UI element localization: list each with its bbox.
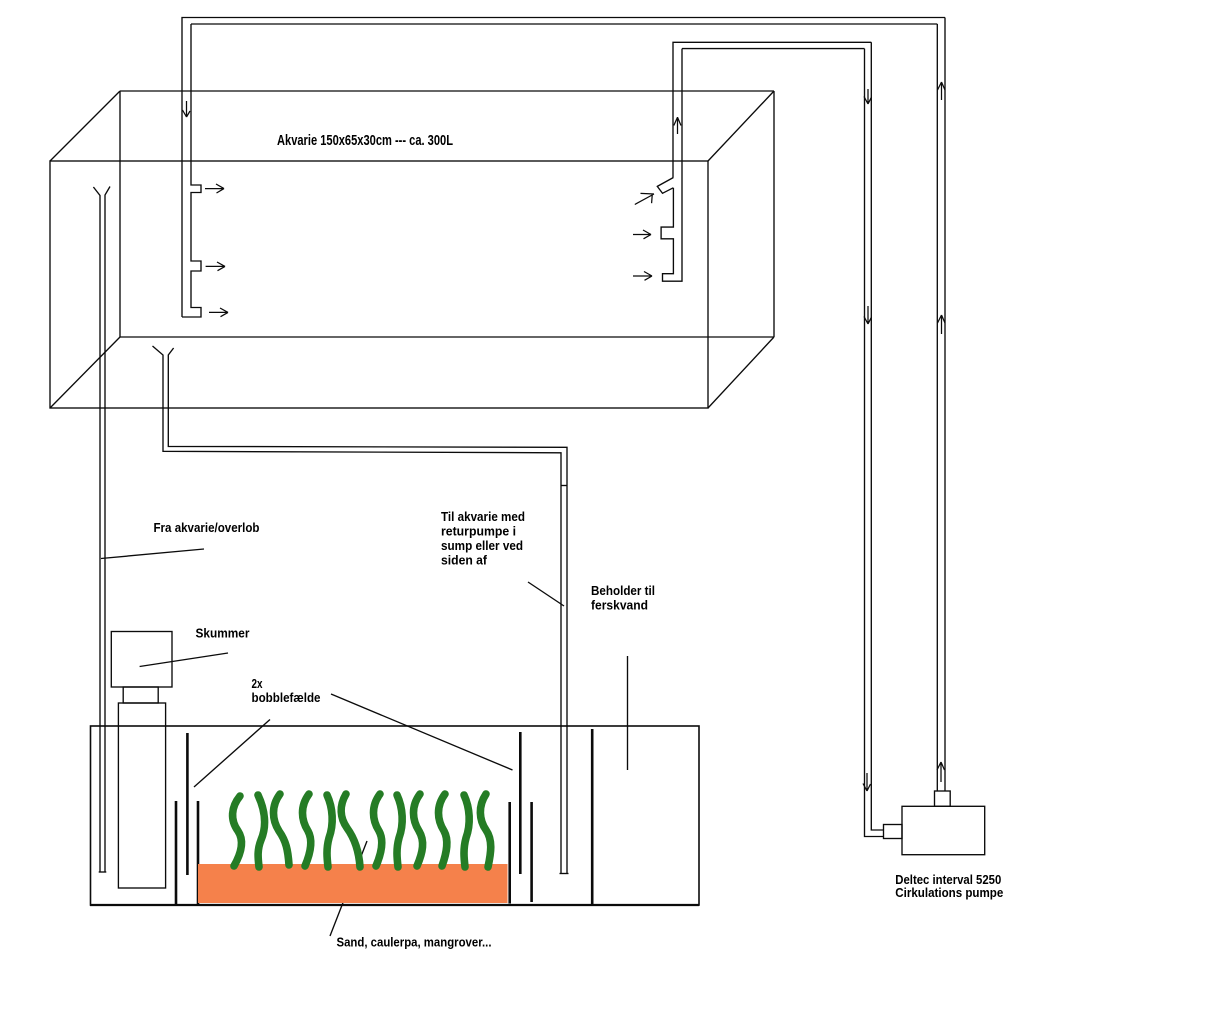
svg-text:Deltec interval 5250: Deltec interval 5250 [895,873,1001,887]
svg-text:sump eller ved: sump eller ved [441,539,523,553]
svg-text:returpumpe i: returpumpe i [441,525,516,539]
svg-text:bobblefælde: bobblefælde [252,691,321,705]
svg-text:siden af: siden af [441,554,488,568]
svg-text:Akvarie 150x65x30cm --- ca. 30: Akvarie 150x65x30cm --- ca. 300L [277,133,453,149]
svg-text:ferskvand: ferskvand [591,599,648,613]
svg-text:Beholder til: Beholder til [591,584,655,598]
svg-text:Cirkulations pumpe: Cirkulations pumpe [895,886,1003,900]
svg-text:Sand, caulerpa, mangrover...: Sand, caulerpa, mangrover... [337,936,492,950]
svg-text:2x: 2x [252,677,263,691]
svg-text:Til akvarie med: Til akvarie med [441,510,525,524]
svg-text:Fra akvarie/overlob: Fra akvarie/overlob [154,521,260,535]
svg-text:Skummer: Skummer [196,626,250,640]
